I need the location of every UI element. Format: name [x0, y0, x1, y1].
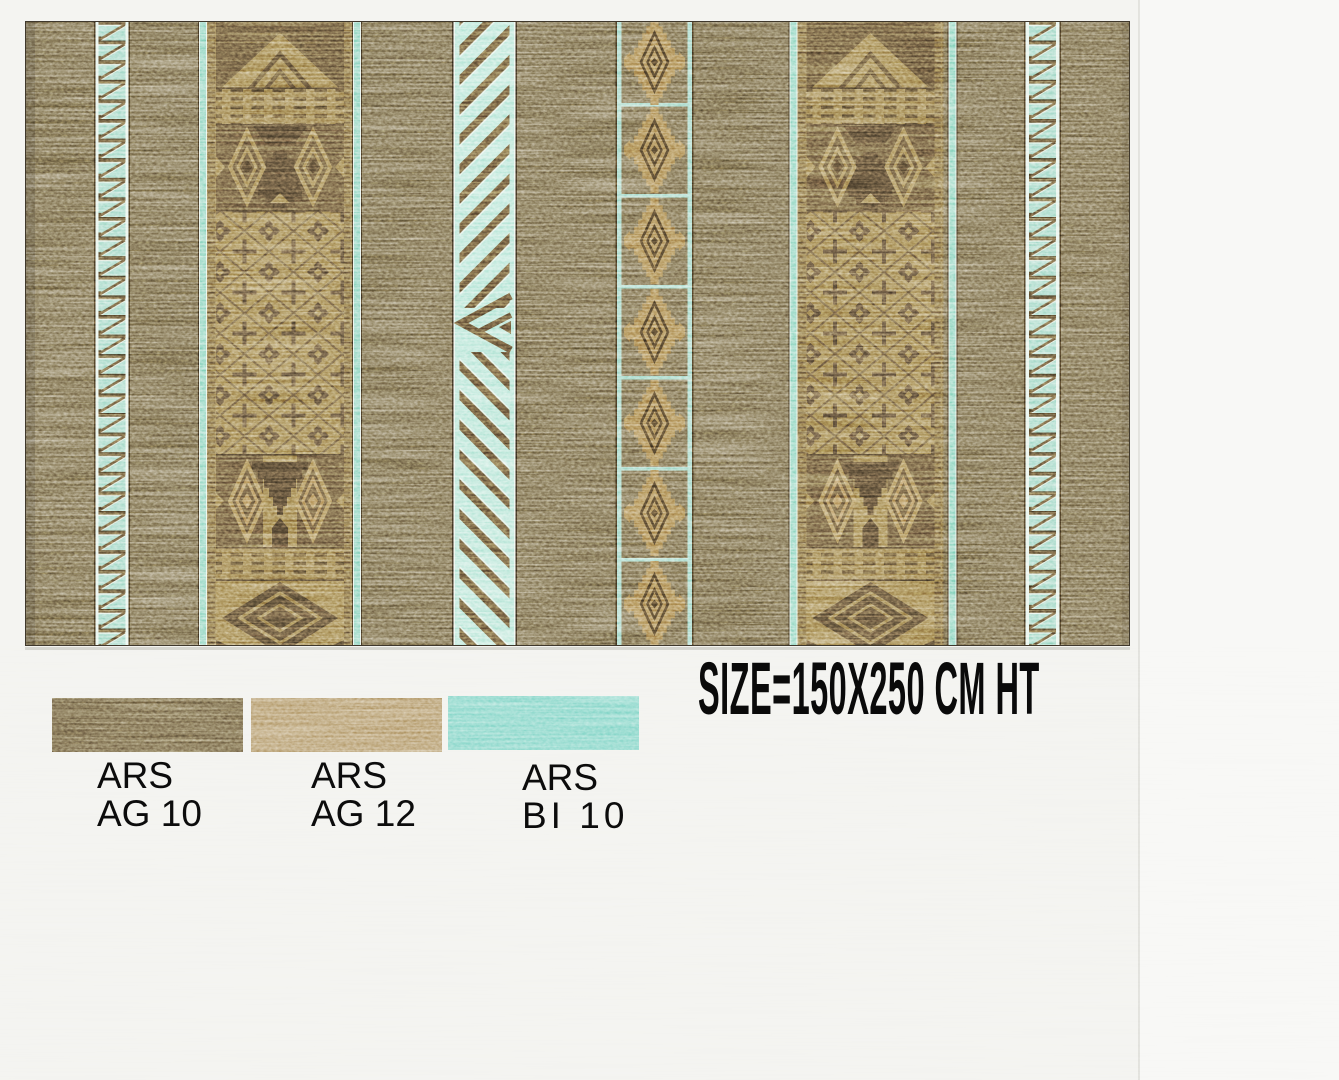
svg-text:ARS: ARS [522, 757, 598, 798]
svg-text:ARS: ARS [97, 755, 173, 796]
svg-text:AG 12: AG 12 [311, 793, 416, 834]
svg-text:ARS: ARS [311, 755, 387, 796]
svg-text:SIZE=150X250 CM HT: SIZE=150X250 CM HT [698, 648, 1040, 731]
svg-text:AG 10: AG 10 [97, 793, 202, 834]
svg-text:BI 10: BI 10 [522, 795, 628, 836]
